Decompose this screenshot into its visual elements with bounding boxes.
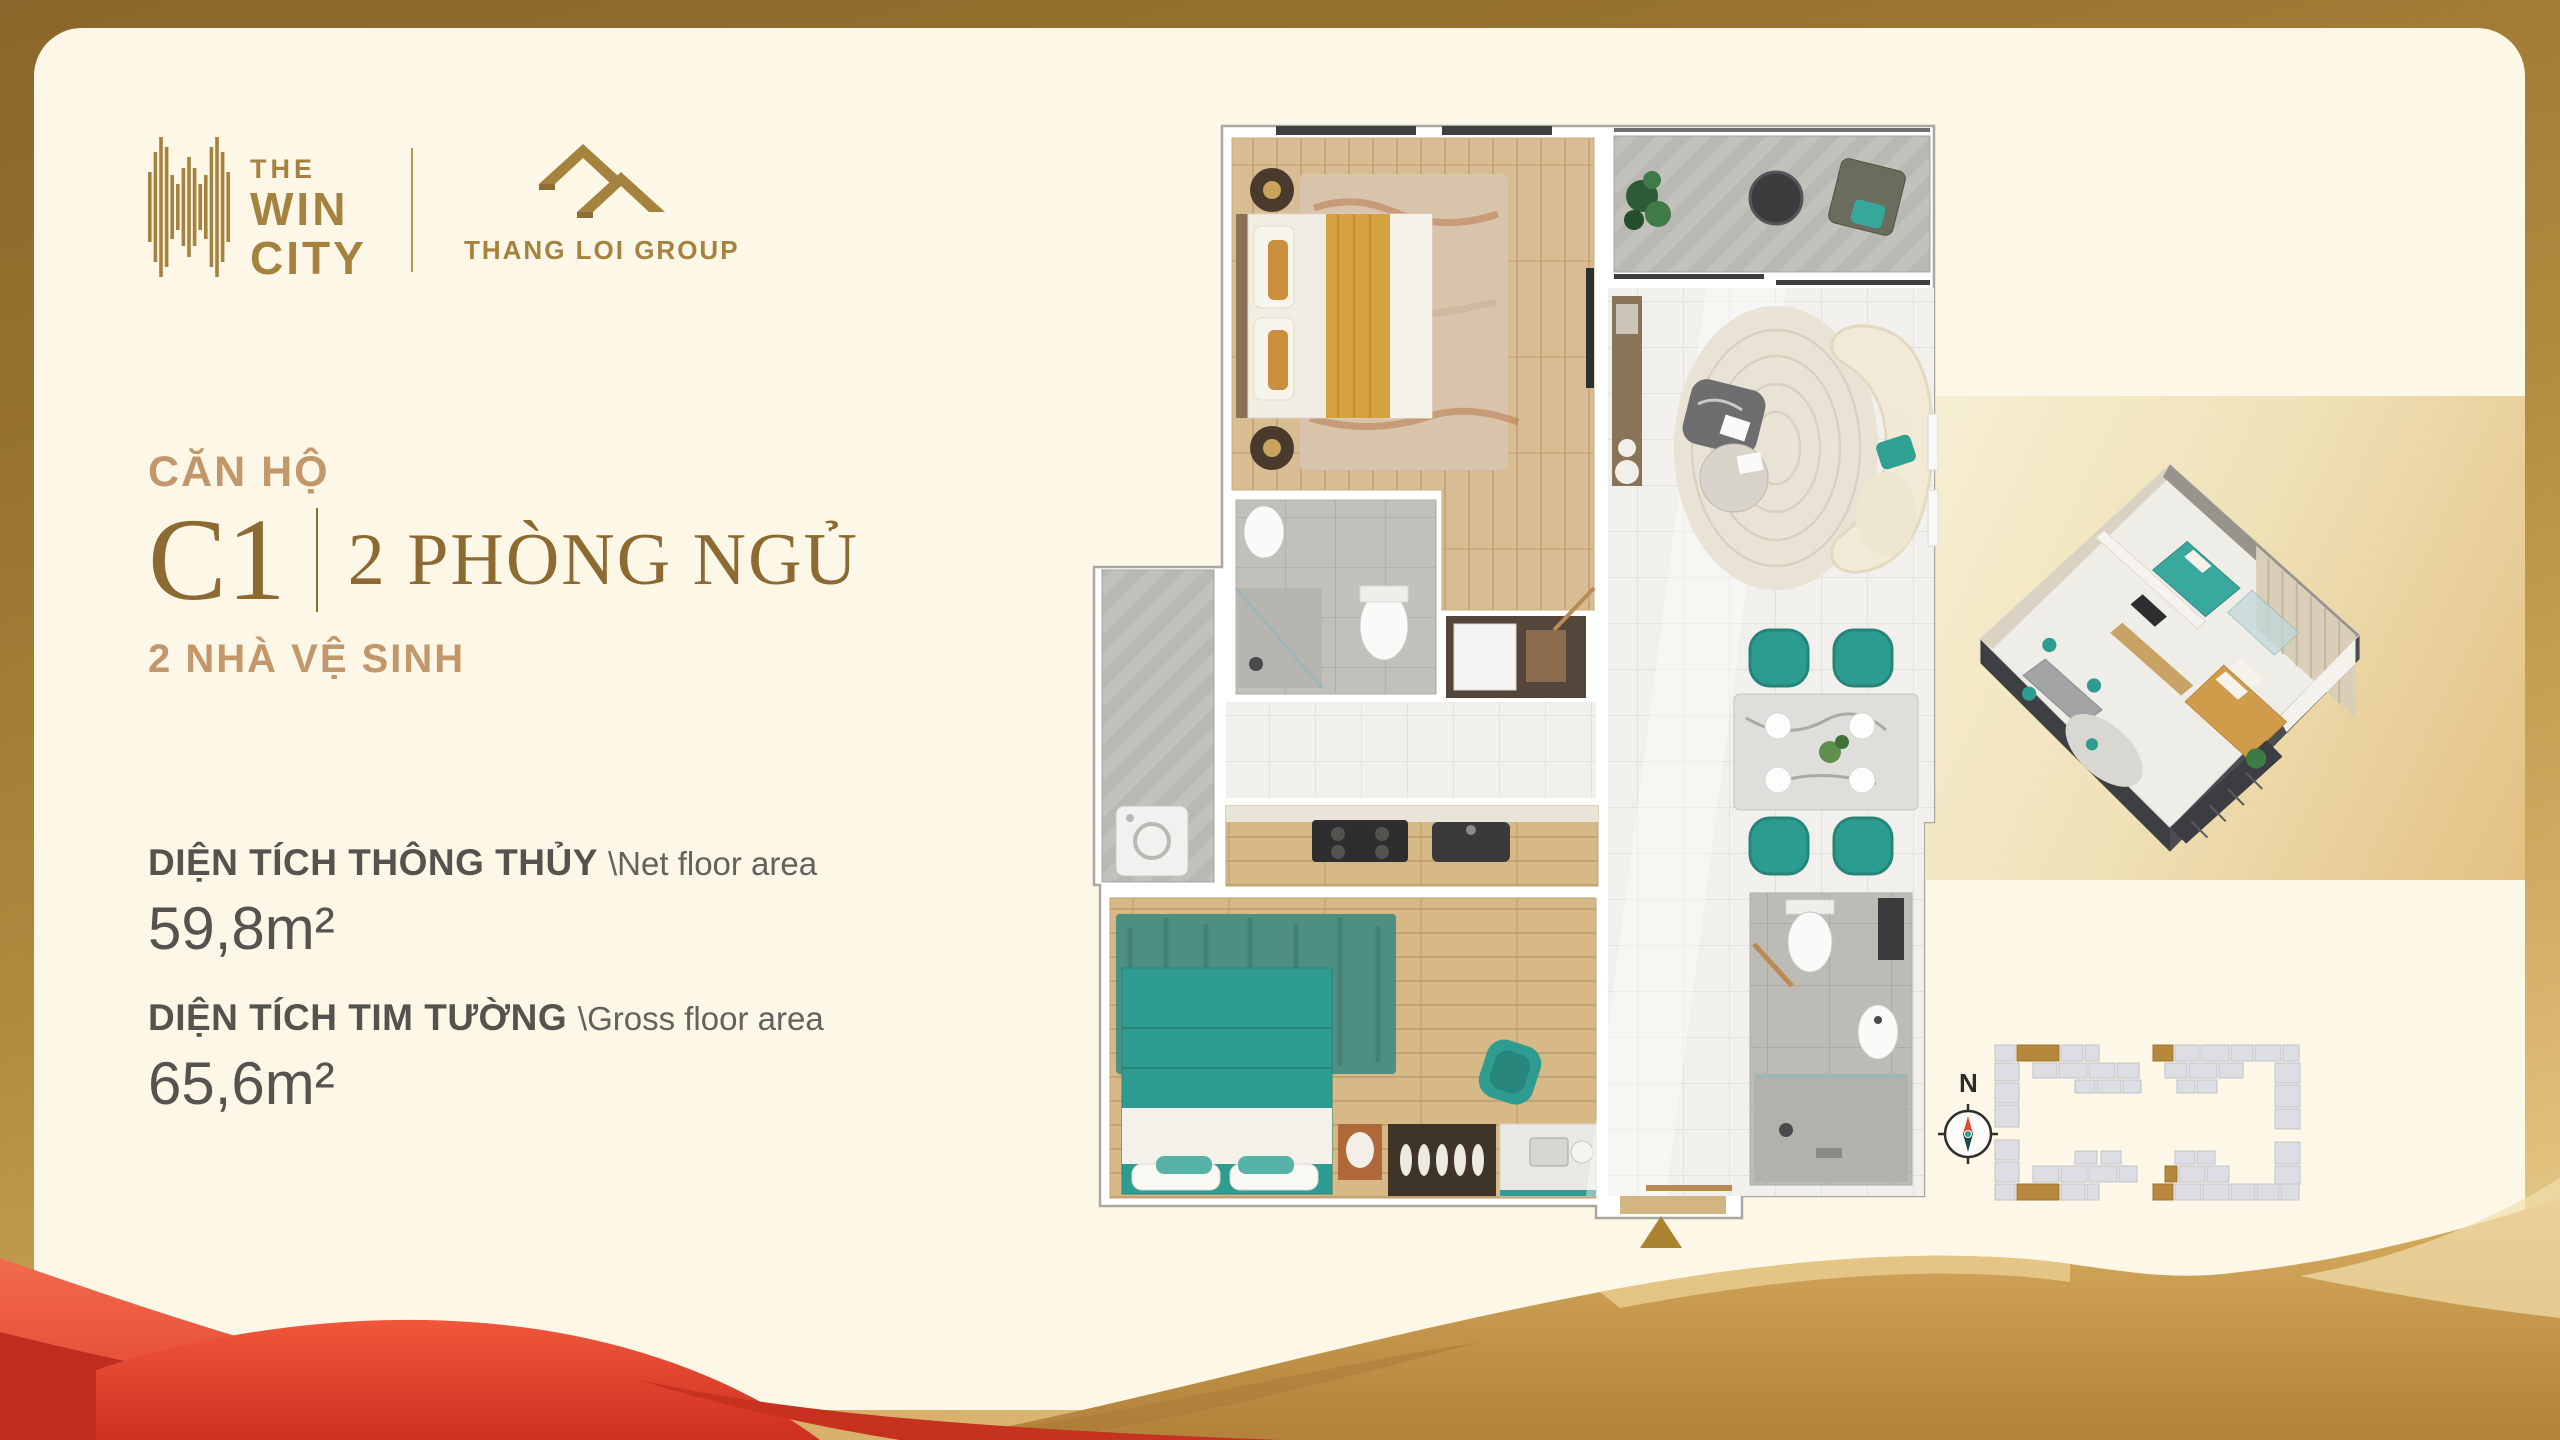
room-balcony	[1614, 128, 1930, 285]
net-area-value: 59,8m²	[148, 894, 824, 963]
gross-area-value: 65,6m²	[148, 1049, 824, 1118]
brand-line-the: THE	[250, 156, 367, 183]
unit-separator	[316, 508, 318, 612]
gross-area-label-vi: DIỆN TÍCH TIM TƯỜNG	[148, 997, 567, 1038]
developer-name: THANG LOI GROUP	[457, 235, 747, 266]
site-plan-buildings	[1995, 1045, 2300, 1200]
net-area-label: DIỆN TÍCH THÔNG THỦY \Net floor area	[148, 842, 824, 884]
win-city-bars-icon	[148, 132, 232, 282]
logo-divider	[411, 148, 413, 272]
entrance-arrow-marker	[1640, 1216, 1682, 1248]
net-area-label-vi: DIỆN TÍCH THÔNG THỦY	[148, 842, 597, 883]
brand-line-win: WIN	[250, 186, 367, 232]
poster: THE WIN CITY THANG LOI GROUP CĂN HỘ C1 2…	[0, 0, 2560, 1440]
compass: N	[1938, 1068, 1998, 1164]
areas-block: DIỆN TÍCH THÔNG THỦY \Net floor area 59,…	[148, 842, 824, 1152]
room-laundry-balcony	[1102, 570, 1214, 882]
site-plan: N	[1925, 1030, 2320, 1230]
unit-bathrooms: 2 NHÀ VỆ SINH	[148, 637, 859, 682]
room-bathroom-1	[1236, 500, 1436, 694]
brand-line-city: CITY	[250, 235, 367, 281]
gross-area-label: DIỆN TÍCH TIM TƯỜNG \Gross floor area	[148, 997, 824, 1039]
floor-plan-2d	[1086, 118, 1944, 1258]
isometric-3d-unit	[1952, 424, 2388, 870]
unit-title-block: CĂN HỘ C1 2 PHÒNG NGỦ 2 NHÀ VỆ SINH	[148, 448, 859, 682]
unit-bedrooms: 2 PHÒNG NGỦ	[348, 523, 859, 597]
header-logos: THE WIN CITY THANG LOI GROUP	[148, 132, 747, 282]
net-area-label-en: \Net floor area	[608, 845, 817, 882]
brand-wordmark: THE WIN CITY	[250, 156, 367, 281]
room-bedroom-2	[1110, 898, 1596, 1198]
room-kitchen	[1226, 702, 1598, 886]
room-bathroom-2	[1750, 893, 1912, 1185]
unit-code-row: C1 2 PHÒNG NGỦ	[148, 501, 859, 619]
unit-code: C1	[148, 501, 286, 619]
compass-north-label: N	[1959, 1068, 1978, 1098]
thang-loi-chevron-icon	[517, 132, 687, 222]
gross-area-label-en: \Gross floor area	[578, 1000, 824, 1037]
developer-logo: THANG LOI GROUP	[457, 132, 747, 266]
unit-category: CĂN HỘ	[148, 448, 859, 497]
